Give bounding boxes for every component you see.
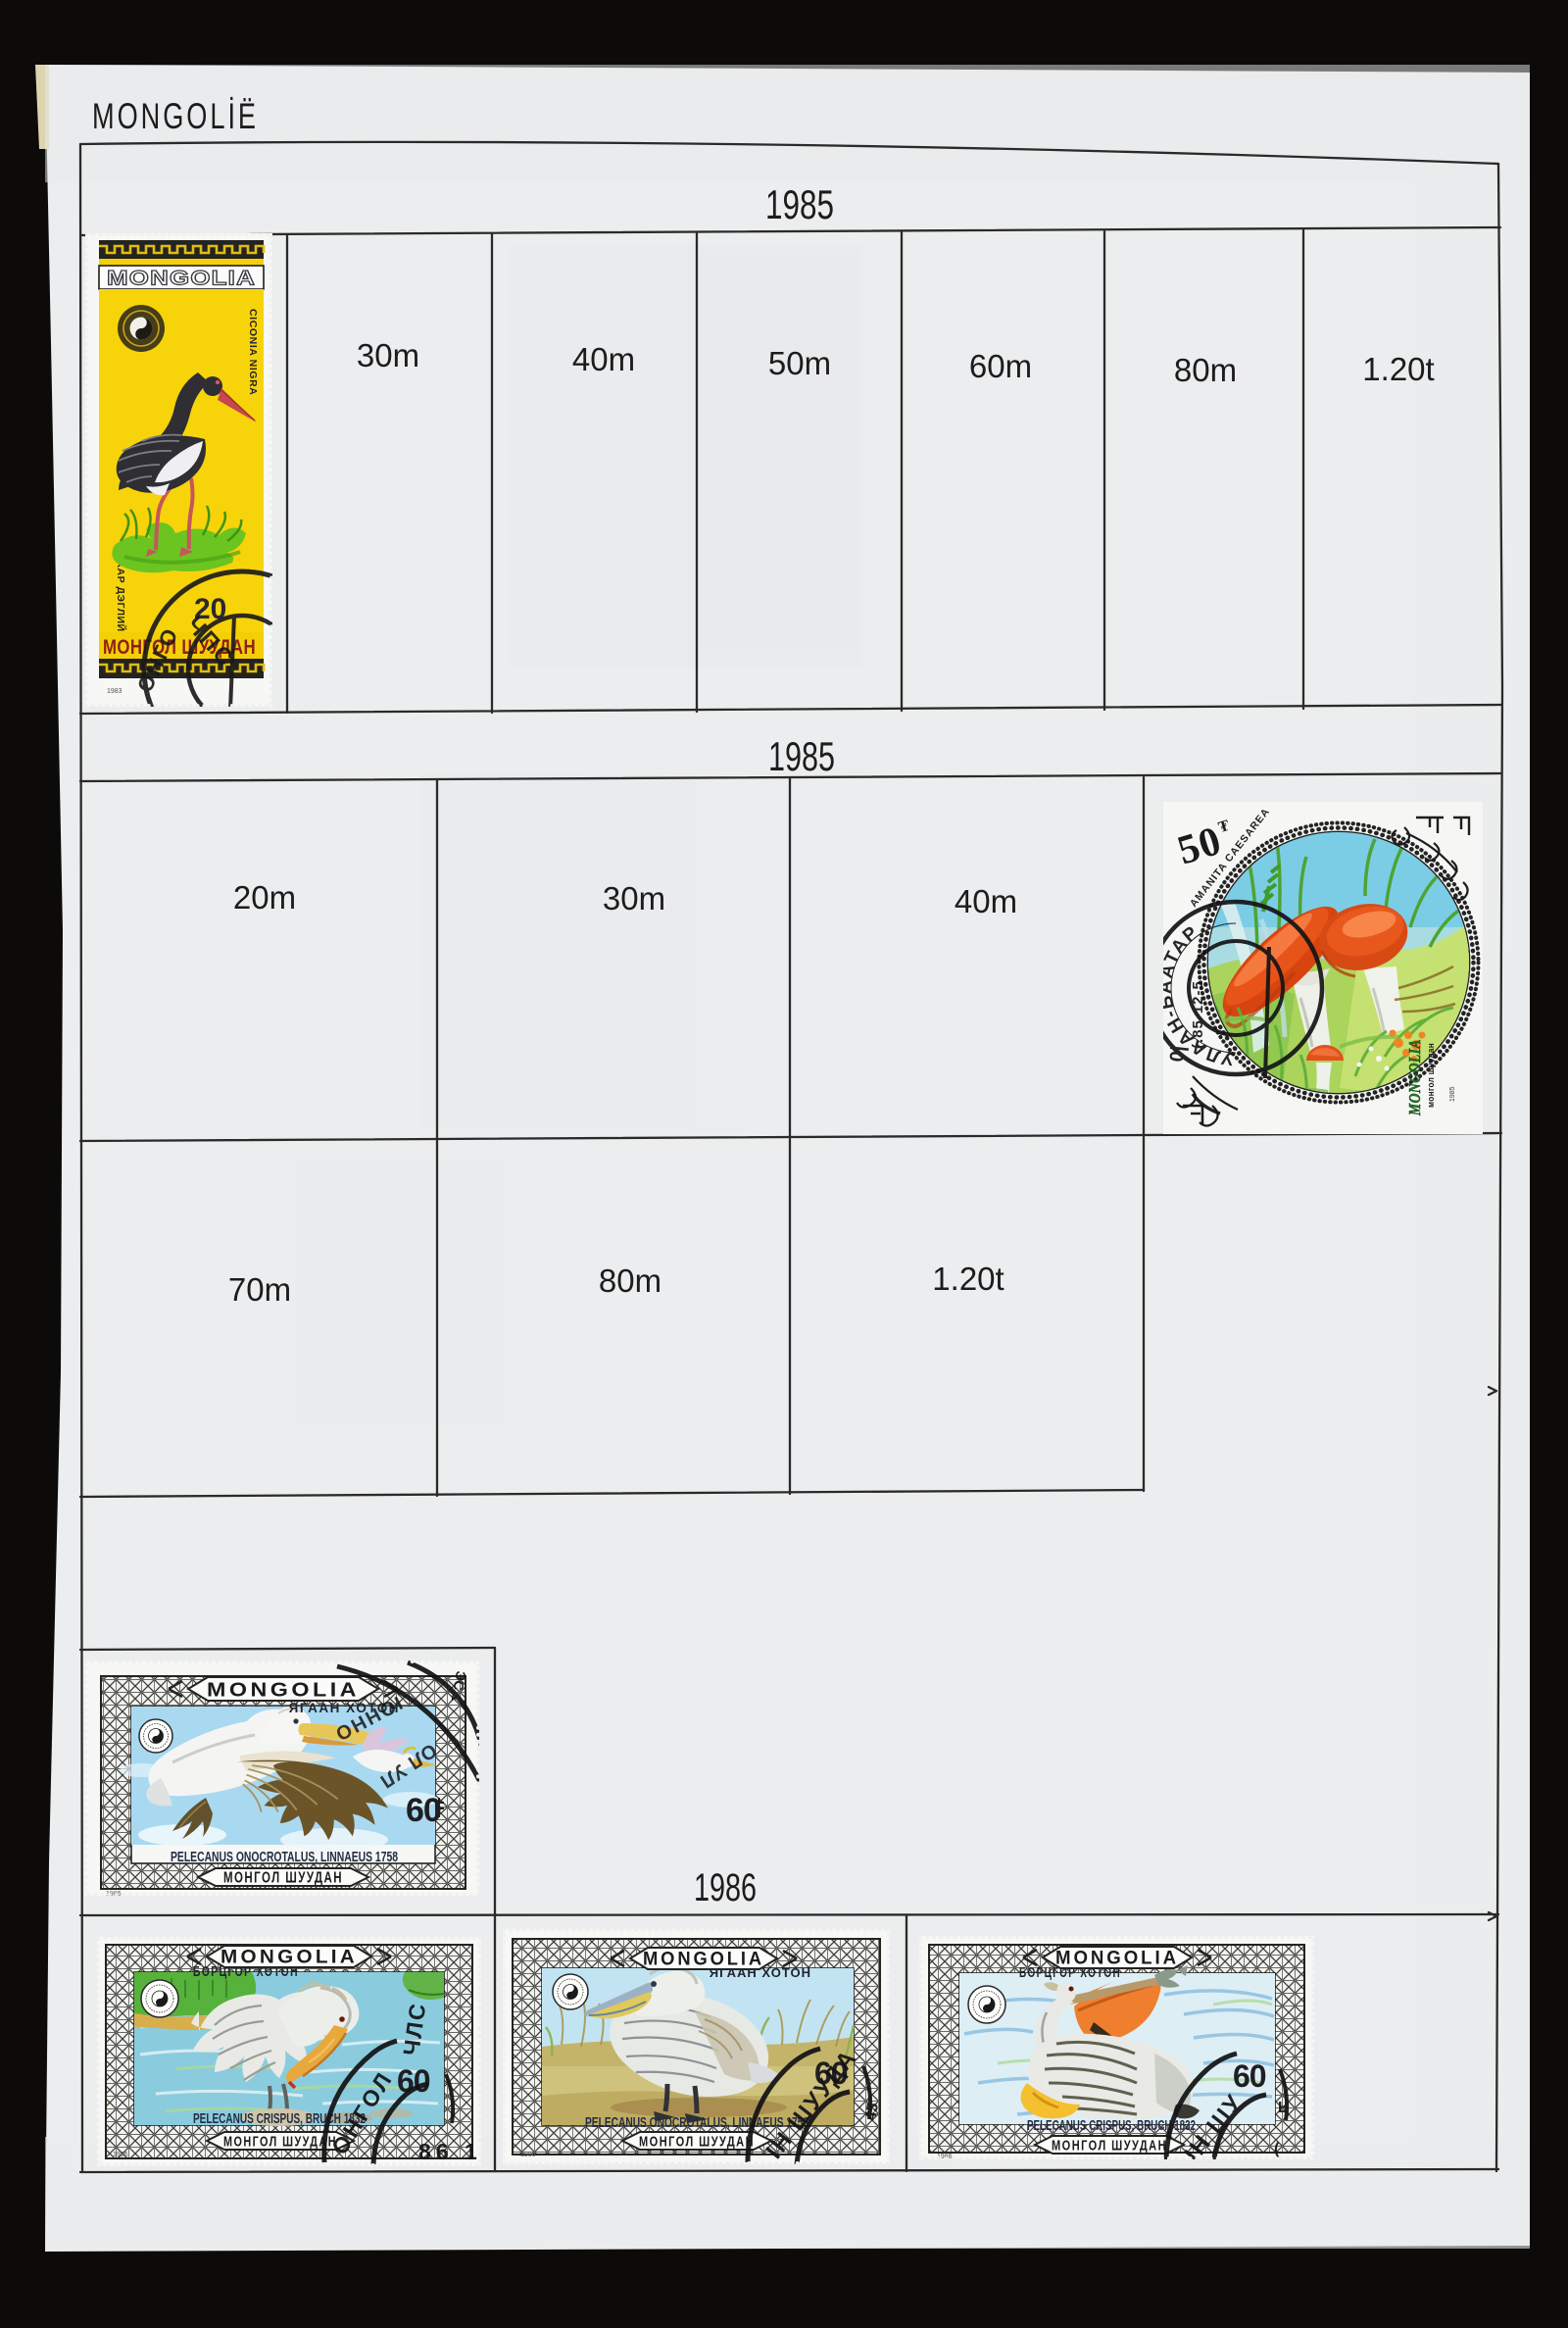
svg-text:MONGOLIA: MONGOLIA xyxy=(107,268,256,290)
svg-text:60m: 60m xyxy=(969,348,1032,384)
svg-text:30m: 30m xyxy=(357,337,419,373)
svg-text:1985: 1985 xyxy=(1449,1086,1456,1102)
svg-text:МОНГОЛ ШУУДАН: МОНГОЛ ШУУДАН xyxy=(639,2134,755,2151)
svg-text:МОНГОЛ ШУУДАН: МОНГОЛ ШУУДАН xyxy=(223,1870,343,1887)
svg-text:86 1: 86 1 xyxy=(418,2139,482,2164)
svg-text:БОРЦГОР ХОТОН: БОРЦГОР ХОТОН xyxy=(1019,1965,1121,1981)
svg-text:1986: 1986 xyxy=(520,2152,536,2158)
svg-text:60: 60 xyxy=(1233,2058,1266,2094)
svg-text:1986: 1986 xyxy=(113,2152,128,2158)
svg-text:1986: 1986 xyxy=(694,1866,757,1909)
svg-text:60: 60 xyxy=(397,2063,430,2099)
svg-text:50m: 50m xyxy=(768,345,831,381)
svg-text:MONGOLIA: MONGOLIA xyxy=(1405,1039,1424,1116)
svg-text:1983: 1983 xyxy=(107,688,122,695)
svg-text:40m: 40m xyxy=(572,341,635,377)
svg-text:40m: 40m xyxy=(955,883,1017,919)
svg-text:45: 45 xyxy=(862,2102,882,2122)
svg-text:МОНГОЛ ШУУДАН: МОНГОЛ ШУУДАН xyxy=(1052,2138,1167,2155)
svg-text:1.20t: 1.20t xyxy=(1362,351,1434,387)
svg-text:MONGOLİË: MONGOLİË xyxy=(92,96,259,136)
svg-text:0|: 0| xyxy=(1166,1045,1190,1064)
svg-text:(.85-12-5: (.85-12-5 xyxy=(1190,980,1206,1049)
svg-text:(: ( xyxy=(1274,2141,1280,2157)
svg-text:60: 60 xyxy=(406,1792,441,1829)
svg-text:20m: 20m xyxy=(233,879,296,916)
svg-text:МОНГОЛ ШУУДАН: МОНГОЛ ШУУДАН xyxy=(223,2134,337,2151)
svg-text:монгол шуудан: монгол шуудан xyxy=(1426,1043,1437,1108)
svg-text:MONGOLIA: MONGOLIA xyxy=(207,1680,360,1702)
svg-text:1985: 1985 xyxy=(768,733,835,779)
svg-text:70m: 70m xyxy=(228,1271,291,1308)
svg-text:CICONIA NIGRA: CICONIA NIGRA xyxy=(247,309,259,396)
svg-text:30m: 30m xyxy=(603,880,665,916)
svg-text:Ь: Ь xyxy=(1278,2100,1290,2116)
svg-text:ХАР ДЭГЛИЙ: ХАР ДЭГЛИЙ xyxy=(115,561,127,632)
svg-text:80m: 80m xyxy=(599,1263,661,1299)
svg-text:ЯГААН ХОТОН: ЯГААН ХОТОН xyxy=(710,1965,811,1980)
svg-text:БОРЦГОР ХОТОН: БОРЦГОР ХОТОН xyxy=(193,1964,299,1980)
svg-text:1.20t: 1.20t xyxy=(932,1261,1004,1297)
svg-text:1985: 1985 xyxy=(765,181,834,227)
svg-text:PELECANUS ONOCROTALUS, LINNAEU: PELECANUS ONOCROTALUS, LINNAEUS 1758 xyxy=(171,1850,398,1865)
svg-text:80m: 80m xyxy=(1174,352,1237,388)
